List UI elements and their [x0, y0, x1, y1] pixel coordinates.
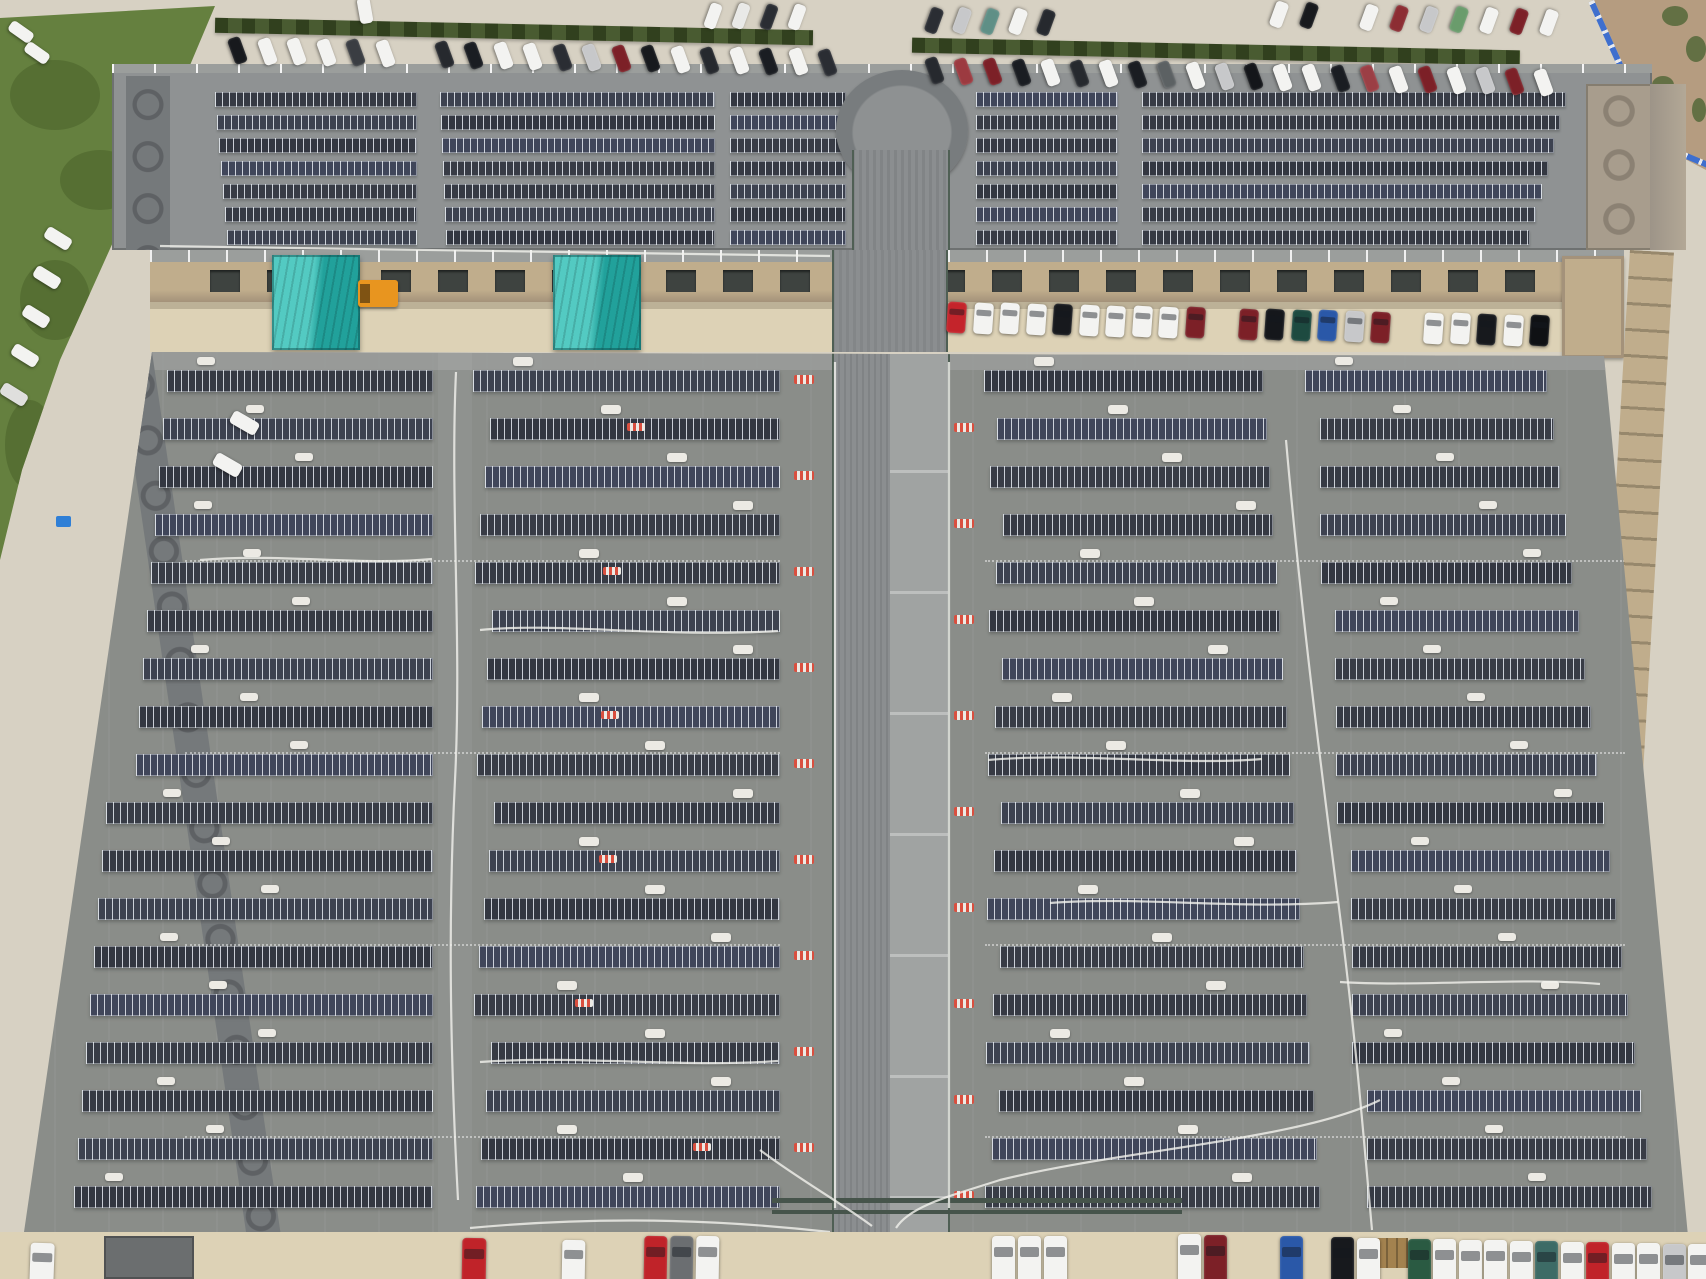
weed-patch: [1686, 36, 1706, 62]
car-windshield: [1294, 316, 1309, 323]
upper-west-wall-arches: [126, 76, 170, 250]
central-corridor-ribbed: [832, 352, 890, 1232]
solar-panel-row: [473, 370, 780, 392]
facade-window: [723, 270, 753, 292]
solar-panel-row: [976, 230, 1118, 245]
roof-vent: [1528, 1173, 1546, 1181]
car-windshield: [672, 1247, 691, 1257]
solar-panel-row: [730, 115, 846, 130]
solar-panel-row: [1142, 184, 1542, 199]
facade-window: [1391, 270, 1421, 292]
car: [1290, 309, 1311, 341]
solar-panel-row: [484, 898, 780, 920]
solar-panel-row: [219, 138, 417, 153]
car-windshield: [1267, 316, 1282, 323]
car: [1204, 1235, 1227, 1279]
central-corridor-smooth: [890, 352, 950, 1232]
upper-east-wall: [1650, 84, 1686, 250]
solar-panel-row: [147, 610, 433, 632]
solar-panel-row: [1000, 946, 1304, 968]
solar-panel-row: [106, 802, 433, 824]
roof-vent: [645, 885, 665, 894]
solar-panel-row: [996, 562, 1277, 584]
solar-panel-row: [1335, 610, 1578, 632]
car-windshield: [1563, 1253, 1582, 1263]
car: [1044, 1236, 1067, 1279]
roof-vent: [1106, 741, 1126, 750]
roof-vent: [1411, 837, 1429, 845]
facade-window: [666, 270, 696, 292]
roof-vent: [733, 501, 753, 510]
striped-exhaust-vent: [954, 519, 974, 528]
roof-vent: [1380, 597, 1398, 605]
hedge-strip: [912, 38, 1520, 66]
car: [1052, 304, 1073, 336]
facade-window: [992, 270, 1022, 292]
solar-panel-row: [1142, 161, 1548, 176]
roof-vent: [1393, 405, 1411, 413]
roof-vent: [243, 549, 261, 557]
solar-panel-row: [480, 514, 780, 536]
solar-panel-row: [151, 562, 433, 584]
striped-exhaust-vent: [794, 759, 814, 768]
striped-exhaust-vent: [794, 855, 814, 864]
roof-seam-dashed: [985, 752, 1625, 754]
car-windshield: [1188, 314, 1203, 321]
roof-seam-dashed: [185, 944, 780, 946]
roof-vent: [292, 597, 310, 605]
roof-vent: [212, 837, 230, 845]
roof-vent: [711, 933, 731, 942]
car-windshield: [646, 1247, 665, 1257]
car-windshield: [1532, 322, 1547, 329]
solar-panel-row: [139, 706, 433, 728]
car-windshield: [564, 1250, 583, 1259]
car: [979, 7, 1000, 36]
roof-vent: [1206, 981, 1226, 990]
car-windshield: [1046, 1247, 1065, 1257]
roof-vent: [160, 933, 178, 941]
striped-exhaust-vent: [954, 711, 974, 720]
car-windshield: [1486, 1251, 1505, 1261]
car: [1331, 1237, 1354, 1279]
roof-vent: [645, 1029, 665, 1038]
striped-exhaust-vent: [794, 951, 814, 960]
roof-vent: [1108, 405, 1128, 414]
roof-seam-dashed: [985, 560, 1625, 562]
striped-exhaust-vent: [627, 423, 645, 431]
car: [1476, 313, 1497, 345]
solar-panel-row: [976, 92, 1118, 107]
corridor-bridge: [832, 250, 948, 352]
solar-panel-row: [440, 92, 715, 107]
solar-panel-row: [492, 610, 780, 632]
solar-panel-row: [993, 994, 1307, 1016]
car: [256, 36, 277, 66]
solar-panel-row: [999, 1090, 1314, 1112]
solar-panel-row: [730, 230, 846, 245]
solar-panel-row: [477, 754, 780, 776]
car-windshield: [1241, 315, 1256, 322]
roof-vent: [1442, 1077, 1460, 1085]
car-windshield: [1506, 321, 1521, 328]
roof-seam-dashed: [985, 1136, 1625, 1138]
roof-vent: [579, 549, 599, 558]
solar-panel-row: [445, 207, 715, 222]
facade-window: [1220, 270, 1250, 292]
car: [1612, 1243, 1635, 1279]
solar-panel-row: [1320, 466, 1560, 488]
solar-panel-row: [1142, 230, 1530, 245]
solar-panel-row: [1142, 115, 1560, 130]
solar-panel-row: [997, 418, 1267, 440]
roof-vent: [579, 837, 599, 846]
grass-patch: [20, 260, 90, 340]
roof-vent: [1050, 1029, 1070, 1038]
roof-vent: [711, 1077, 731, 1086]
roof-vent: [1454, 885, 1472, 893]
solar-panel-row: [1367, 1138, 1647, 1160]
car: [562, 1240, 586, 1279]
roof-vent: [1541, 981, 1559, 989]
roof-vent: [1208, 645, 1228, 654]
car: [1131, 306, 1152, 338]
striped-exhaust-vent: [954, 1095, 974, 1104]
facade-window: [1049, 270, 1079, 292]
facade-window: [210, 270, 240, 292]
roof-vent: [261, 885, 279, 893]
roof-vent: [623, 1173, 643, 1182]
car: [1508, 7, 1529, 36]
roof-vent: [1467, 693, 1485, 701]
facade-window: [1505, 270, 1535, 292]
solar-panel-row: [1002, 658, 1283, 680]
roof-vent: [1479, 501, 1497, 509]
car: [1510, 1241, 1533, 1279]
weed-patch: [1692, 98, 1706, 122]
striped-exhaust-vent: [599, 855, 617, 863]
roof-vent: [295, 453, 313, 461]
solar-panel-row: [976, 161, 1118, 176]
solar-panel-row: [86, 1042, 433, 1064]
facade-window: [1448, 270, 1478, 292]
solar-panel-row: [491, 1042, 780, 1064]
solar-panel-row: [163, 418, 433, 440]
solar-panel-row: [1320, 514, 1566, 536]
roof-vent: [733, 789, 753, 798]
solar-panel-row: [995, 706, 1287, 728]
car-windshield: [1453, 320, 1468, 327]
car: [1388, 4, 1409, 33]
weed-patch: [1662, 6, 1688, 26]
roof-vent: [1554, 789, 1572, 797]
aerial-photo: [0, 0, 1706, 1279]
roof-vent: [163, 789, 181, 797]
car: [1478, 6, 1499, 35]
car-windshield: [1479, 320, 1494, 327]
solar-panel-row: [82, 1090, 433, 1112]
striped-exhaust-vent: [794, 567, 814, 576]
car-windshield: [1690, 1255, 1706, 1265]
car: [1448, 5, 1469, 34]
car: [946, 301, 967, 333]
car: [1449, 313, 1470, 345]
solar-panel-row: [1367, 1186, 1652, 1208]
solar-panel-row: [730, 138, 846, 153]
solar-panel-row: [987, 898, 1300, 920]
solar-panel-row: [475, 562, 780, 584]
solar-panel-row: [1321, 562, 1573, 584]
solar-panel-row: [1336, 706, 1591, 728]
grass-patch: [10, 60, 100, 130]
striped-exhaust-vent: [601, 711, 619, 719]
roof-vent: [209, 981, 227, 989]
car-windshield: [1537, 1252, 1556, 1262]
car-windshield: [1512, 1252, 1531, 1262]
solar-panel-row: [730, 92, 846, 107]
roof-vent: [1180, 789, 1200, 798]
roof-vent: [1232, 1173, 1252, 1182]
solar-panel-row: [102, 850, 433, 872]
roof-vent: [1178, 1125, 1198, 1134]
solar-panel-row: [476, 1186, 780, 1208]
solar-panel-row: [1142, 92, 1566, 107]
roof-vent: [1498, 933, 1516, 941]
teal-skylight-structure: [553, 255, 641, 350]
solar-panel-row: [1352, 1042, 1634, 1064]
solar-panel-row: [1352, 994, 1629, 1016]
car: [1561, 1242, 1584, 1279]
car: [1018, 1236, 1041, 1279]
roof-vent: [1052, 693, 1072, 702]
solar-panel-row: [78, 1138, 433, 1160]
solar-panel-row: [223, 184, 417, 199]
car: [1358, 3, 1379, 32]
teal-skylight-structure: [272, 255, 360, 350]
car: [1105, 305, 1126, 337]
striped-exhaust-vent: [954, 807, 974, 816]
car-windshield: [1410, 1250, 1429, 1260]
roof-vent: [1335, 357, 1353, 365]
car-windshield: [976, 309, 991, 316]
solar-panel-row: [167, 370, 433, 392]
roof-vent: [645, 741, 665, 750]
roof-vent: [1523, 549, 1541, 557]
car: [1035, 8, 1056, 37]
solar-panel-row: [989, 610, 1280, 632]
solar-panel-row: [217, 115, 417, 130]
solar-panel-row: [494, 802, 780, 824]
roof-pipe: [772, 1198, 1182, 1203]
striped-exhaust-vent: [794, 1047, 814, 1056]
car: [1237, 308, 1258, 340]
roof-vent: [1134, 597, 1154, 606]
car-windshield: [1588, 1253, 1607, 1263]
car: [1688, 1244, 1706, 1279]
car: [1418, 5, 1439, 34]
solar-panel-row: [159, 466, 433, 488]
car: [1317, 310, 1338, 342]
car: [1078, 304, 1099, 336]
roof-vent: [206, 1125, 224, 1133]
car-windshield: [1055, 311, 1070, 318]
striped-exhaust-vent: [693, 1143, 711, 1151]
solar-panel-row: [1352, 946, 1623, 968]
solar-panel-row: [479, 946, 780, 968]
solar-panel-row: [485, 466, 780, 488]
solar-panel-row: [94, 946, 433, 968]
solar-panel-row: [992, 1138, 1317, 1160]
car-windshield: [1135, 313, 1150, 320]
blue-tarp: [56, 516, 71, 527]
facade-window: [1163, 270, 1193, 292]
roof-vent: [513, 357, 533, 366]
solar-panel-row: [1335, 658, 1584, 680]
solar-panel-row: [1320, 418, 1554, 440]
car-windshield: [1435, 1250, 1454, 1260]
car: [1370, 311, 1391, 343]
car: [703, 2, 723, 31]
roof-vent: [1234, 837, 1254, 846]
solar-panel-row: [990, 466, 1270, 488]
car: [1178, 1234, 1201, 1279]
car: [1423, 312, 1444, 344]
roof-seam-dashed: [185, 752, 780, 754]
striped-exhaust-vent: [603, 567, 621, 575]
car-windshield: [1461, 1251, 1480, 1261]
car-windshield: [1639, 1254, 1658, 1264]
striped-exhaust-vent: [954, 615, 974, 624]
solar-panel-row: [1367, 1090, 1641, 1112]
roof-vent: [1236, 501, 1256, 510]
loading-dock: [104, 1236, 194, 1279]
roof-vent: [733, 645, 753, 654]
roof-seam-dashed: [185, 560, 780, 562]
solar-panel-row: [446, 230, 715, 245]
car: [644, 1236, 668, 1279]
car: [29, 1243, 55, 1279]
car-windshield: [1161, 313, 1176, 320]
solar-panel-row: [986, 1042, 1310, 1064]
car: [1484, 1240, 1507, 1279]
solar-panel-row: [988, 754, 1290, 776]
solar-panel-row: [1336, 754, 1597, 776]
car-windshield: [1180, 1245, 1199, 1255]
car-windshield: [1665, 1255, 1684, 1265]
roof-vent: [246, 405, 264, 413]
striped-exhaust-vent: [794, 1143, 814, 1152]
solar-panel-row: [225, 207, 417, 222]
car: [1280, 1236, 1303, 1279]
solar-panel-row: [730, 184, 846, 199]
solar-panel-row: [1142, 207, 1536, 222]
roof-vent: [1034, 357, 1054, 366]
stair-tower: [1562, 256, 1624, 358]
solar-panel-row: [1351, 898, 1616, 920]
roof-vent: [601, 405, 621, 414]
car: [1184, 307, 1205, 339]
solar-panel-row: [976, 207, 1118, 222]
car: [1637, 1243, 1660, 1279]
car-windshield: [1333, 1248, 1352, 1258]
car: [462, 1238, 487, 1279]
car-windshield: [32, 1253, 52, 1263]
roof-vent: [105, 1173, 123, 1181]
solar-panel-row: [994, 850, 1297, 872]
roof-vent: [557, 981, 577, 990]
roof-vent: [194, 501, 212, 509]
solar-panel-row: [730, 207, 846, 222]
car: [992, 1236, 1015, 1279]
solar-panel-row: [443, 161, 715, 176]
car: [999, 303, 1020, 335]
roof-vent: [1162, 453, 1182, 462]
car-windshield: [949, 308, 964, 315]
car: [1529, 315, 1550, 347]
car: [1535, 1241, 1558, 1279]
solar-panel-row: [442, 138, 715, 153]
car-windshield: [1082, 311, 1097, 318]
car: [286, 37, 307, 67]
upper-corridor-roof: [852, 150, 950, 250]
roof-vent: [1152, 933, 1172, 942]
solar-panel-row: [441, 115, 715, 130]
striped-exhaust-vent: [575, 999, 593, 1007]
roof-vent: [197, 357, 215, 365]
solar-panel-row: [90, 994, 433, 1016]
solar-panel-row: [221, 161, 417, 176]
roof-vent: [157, 1077, 175, 1085]
facade-window: [438, 270, 468, 292]
car: [1502, 314, 1523, 346]
car-windshield: [1002, 310, 1017, 317]
roof-vent: [1436, 453, 1454, 461]
car: [923, 6, 944, 35]
roof-vent: [667, 453, 687, 462]
solar-panel-row: [1305, 370, 1547, 392]
striped-exhaust-vent: [794, 375, 814, 384]
striped-exhaust-vent: [954, 903, 974, 912]
car: [1158, 306, 1179, 338]
roof-vent: [1078, 885, 1098, 894]
roof-aisle-left: [438, 352, 472, 1232]
solar-panel-row: [976, 184, 1118, 199]
grass-patch: [5, 400, 55, 490]
car: [1357, 1238, 1380, 1279]
car-windshield: [1029, 310, 1044, 317]
solar-panel-row: [1337, 802, 1604, 824]
roof-vent: [557, 1125, 577, 1134]
car-windshield: [1320, 317, 1335, 324]
car-windshield: [464, 1249, 484, 1259]
solar-panel-row: [474, 994, 780, 1016]
solar-panel-row: [444, 184, 715, 199]
roof-seam-dashed: [185, 1136, 780, 1138]
solar-panel-row: [976, 138, 1118, 153]
car: [1025, 303, 1046, 335]
roof-vent: [1510, 741, 1528, 749]
striped-exhaust-vent: [954, 423, 974, 432]
car: [696, 1236, 720, 1279]
car: [787, 3, 807, 32]
car: [1433, 1239, 1456, 1279]
car-windshield: [1282, 1247, 1301, 1257]
car-windshield: [1020, 1247, 1039, 1257]
roof-vent: [1485, 1125, 1503, 1133]
solar-panel-row: [976, 115, 1118, 130]
car: [1298, 1, 1319, 30]
striped-exhaust-vent: [794, 663, 814, 672]
